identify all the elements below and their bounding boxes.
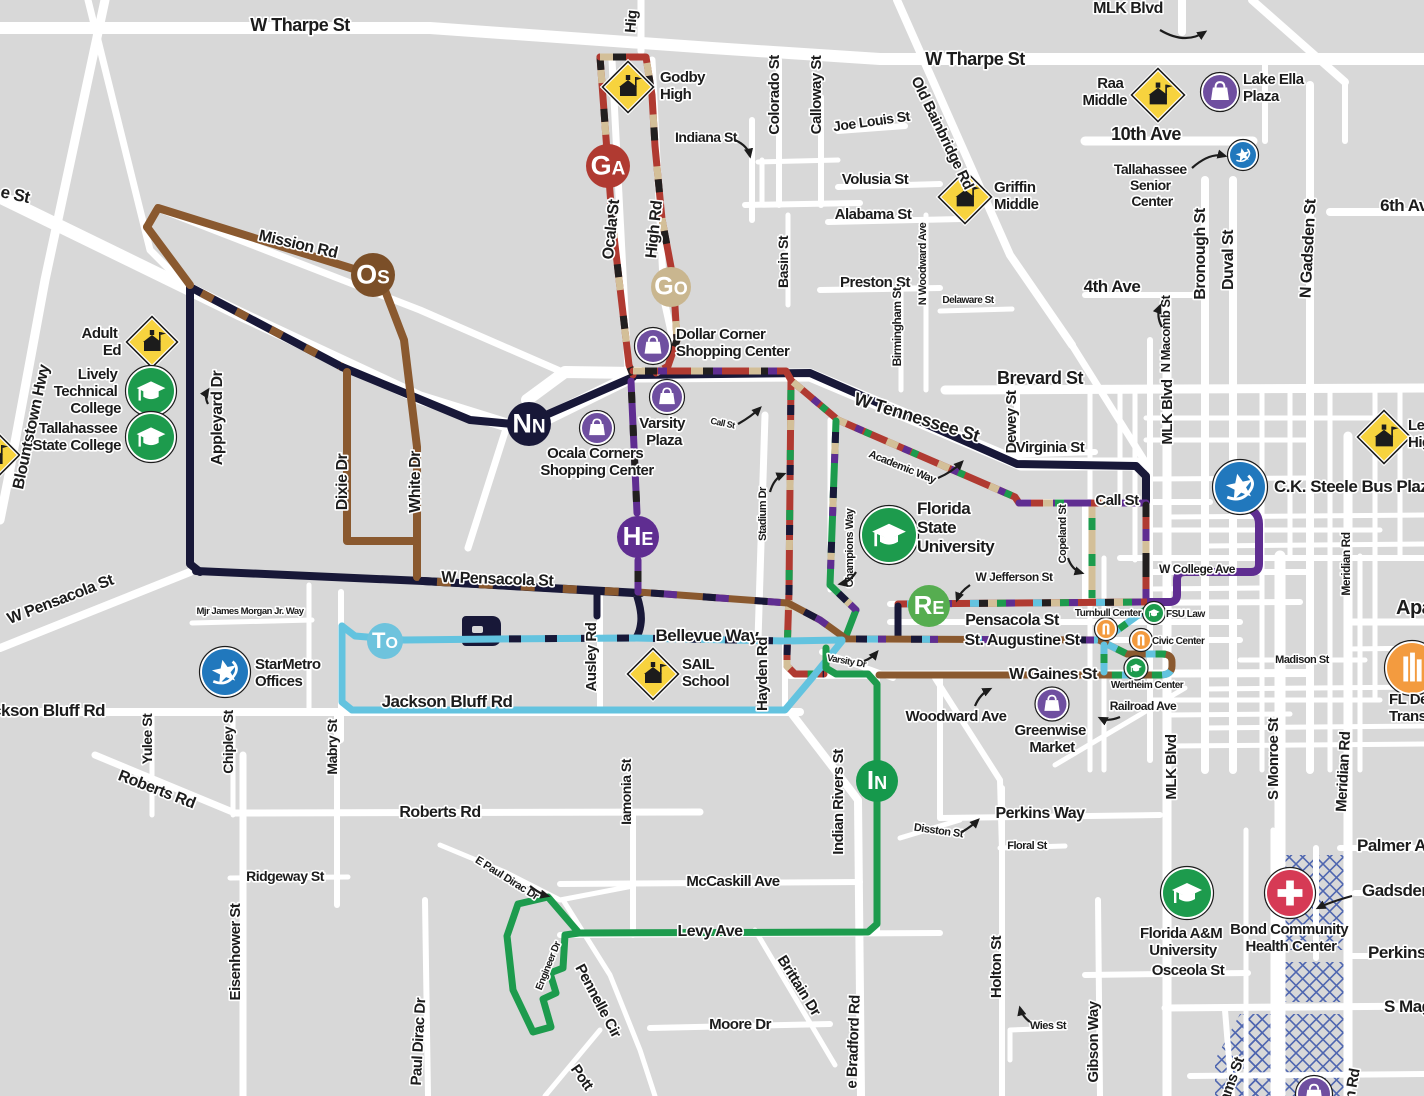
svg-text:W College Ave: W College Ave: [1159, 562, 1236, 576]
svg-text:Apala: Apala: [1396, 597, 1424, 619]
svg-text:Birmingham St: Birmingham St: [890, 287, 904, 366]
svg-text:Eisenhower St: Eisenhower St: [227, 903, 244, 1000]
svg-text:Hig: Hig: [622, 9, 641, 33]
svg-text:MLK Blvd: MLK Blvd: [1163, 734, 1180, 800]
svg-text:Leon High: Leon High: [1408, 417, 1424, 451]
svg-text:Ocala Corners Shopping Center: Ocala Corners Shopping Center: [540, 445, 654, 479]
svg-text:N Woodward Ave: N Woodward Ave: [917, 222, 929, 305]
svg-text:W Tharpe St: W Tharpe St: [250, 15, 350, 35]
svg-text:Dixie Dr: Dixie Dr: [334, 453, 351, 510]
svg-text:McCaskill Ave: McCaskill Ave: [686, 873, 779, 890]
svg-text:C.K. Steele Bus Plaza: C.K. Steele Bus Plaza: [1274, 477, 1424, 496]
svg-text:4th Ave: 4th Ave: [1084, 277, 1141, 296]
svg-text:Woodward Ave: Woodward Ave: [906, 708, 1007, 725]
svg-text:MLK Blvd: MLK Blvd: [1093, 0, 1163, 17]
svg-text:Madison St: Madison St: [1275, 654, 1330, 666]
svg-text:Meridian Rd: Meridian Rd: [1339, 532, 1353, 595]
svg-text:Alabama St: Alabama St: [835, 206, 912, 223]
svg-text:Hayden Rd: Hayden Rd: [754, 637, 771, 711]
svg-text:Floral St: Floral St: [1007, 840, 1047, 852]
svg-text:Tallahassee State College: Tallahassee State College: [32, 420, 121, 454]
svg-text:Holton St: Holton St: [988, 935, 1005, 998]
svg-text:W Tharpe St: W Tharpe St: [925, 49, 1025, 69]
svg-text:Perkins Way: Perkins Way: [995, 805, 1085, 822]
svg-text:W Gaines St: W Gaines St: [1009, 666, 1098, 683]
svg-text:Perkins: Perkins: [1368, 943, 1424, 962]
svg-text:Calloway St: Calloway St: [808, 55, 825, 134]
svg-text:Griffin Middle: Griffin Middle: [994, 179, 1039, 213]
svg-text:White Dr: White Dr: [407, 451, 424, 513]
svg-text:Mjr James Morgan Jr. Way: Mjr James Morgan Jr. Way: [197, 606, 305, 617]
svg-text:Bronough St: Bronough St: [1192, 207, 1209, 300]
svg-text:Levy Ave: Levy Ave: [677, 923, 743, 940]
svg-text:S Mag: S Mag: [1384, 997, 1424, 1016]
svg-text:Railroad Ave: Railroad Ave: [1110, 699, 1177, 713]
svg-text:Wies St: Wies St: [1030, 1020, 1067, 1032]
svg-text:Wertheim Center: Wertheim Center: [1111, 680, 1184, 691]
svg-text:Palmer Av: Palmer Av: [1357, 836, 1424, 855]
svg-text:Gibson Way: Gibson Way: [1085, 1000, 1102, 1082]
svg-text:FSU Law: FSU Law: [1166, 609, 1205, 620]
svg-text:Bond Community Health Center: Bond Community Health Center: [1230, 921, 1352, 955]
svg-text:S Monroe St: S Monroe St: [1265, 718, 1282, 801]
svg-text:Basin St: Basin St: [775, 235, 791, 288]
svg-text:W Jefferson St: W Jefferson St: [975, 570, 1053, 584]
svg-text:Appleyard Dr: Appleyard Dr: [209, 370, 226, 465]
svg-text:Jackson Bluff Rd: Jackson Bluff Rd: [382, 692, 513, 711]
svg-text:Roberts Rd: Roberts Rd: [399, 804, 480, 821]
svg-text:Ridgeway St: Ridgeway St: [246, 868, 325, 884]
svg-text:Volusia St: Volusia St: [842, 171, 909, 188]
svg-text:Stadium Dr: Stadium Dr: [757, 486, 769, 541]
svg-text:Jackson Bluff Rd: Jackson Bluff Rd: [0, 701, 105, 720]
svg-text:Copeland St: Copeland St: [1057, 504, 1069, 564]
svg-text:Turnbull Center: Turnbull Center: [1075, 608, 1142, 619]
svg-text:Bellevue Way: Bellevue Way: [656, 626, 760, 645]
svg-text:Osceola St: Osceola St: [1152, 962, 1225, 979]
svg-text:Varsity Plaza: Varsity Plaza: [639, 415, 688, 449]
svg-text:FL Dept Transpor: FL Dept Transpor: [1389, 691, 1424, 725]
svg-text:Civic Center: Civic Center: [1152, 636, 1205, 647]
svg-text:Duval St: Duval St: [1220, 229, 1237, 290]
svg-text:10th Ave: 10th Ave: [1111, 124, 1181, 144]
svg-text:St. Augustine St: St. Augustine St: [965, 632, 1081, 649]
svg-text:Pensacola St: Pensacola St: [965, 612, 1060, 629]
svg-text:Virginia St: Virginia St: [1016, 439, 1085, 456]
svg-text:Indian Rivers St: Indian Rivers St: [830, 749, 847, 855]
svg-text:Iamonia St: Iamonia St: [618, 758, 634, 825]
svg-text:MLK Blvd: MLK Blvd: [1159, 379, 1176, 445]
svg-text:Chipley St: Chipley St: [220, 709, 236, 773]
svg-text:Gadsden: Gadsden: [1362, 881, 1424, 900]
svg-text:Yulee St: Yulee St: [139, 713, 155, 764]
svg-text:Delaware St: Delaware St: [942, 295, 994, 306]
svg-text:Indiana St: Indiana St: [675, 129, 738, 145]
svg-text:6th Av: 6th Av: [1380, 196, 1424, 215]
svg-text:Moore Dr: Moore Dr: [709, 1016, 772, 1033]
svg-text:Brevard St: Brevard St: [997, 368, 1084, 388]
svg-text:Colorado St: Colorado St: [766, 55, 783, 135]
svg-text:Florida A&M University: Florida A&M University: [1140, 925, 1226, 959]
svg-text:e Bradford Rd: e Bradford Rd: [843, 994, 863, 1088]
svg-text:Mabry St: Mabry St: [324, 719, 340, 775]
svg-text:Ausley Rd: Ausley Rd: [583, 622, 600, 691]
svg-text:Call St: Call St: [1095, 492, 1139, 509]
